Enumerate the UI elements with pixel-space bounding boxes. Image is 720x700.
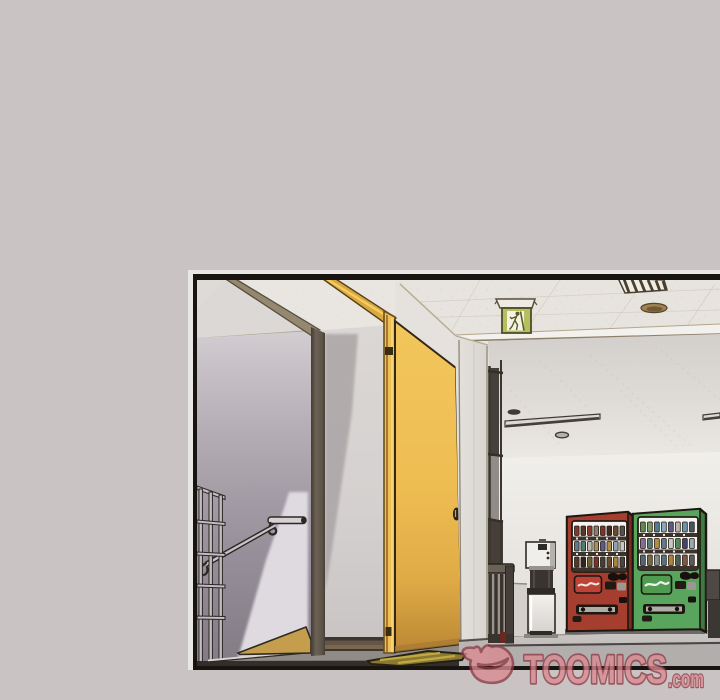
svg-text:TOOMICS: TOOMICS bbox=[524, 648, 667, 692]
svg-text:.com: .com bbox=[668, 666, 704, 692]
